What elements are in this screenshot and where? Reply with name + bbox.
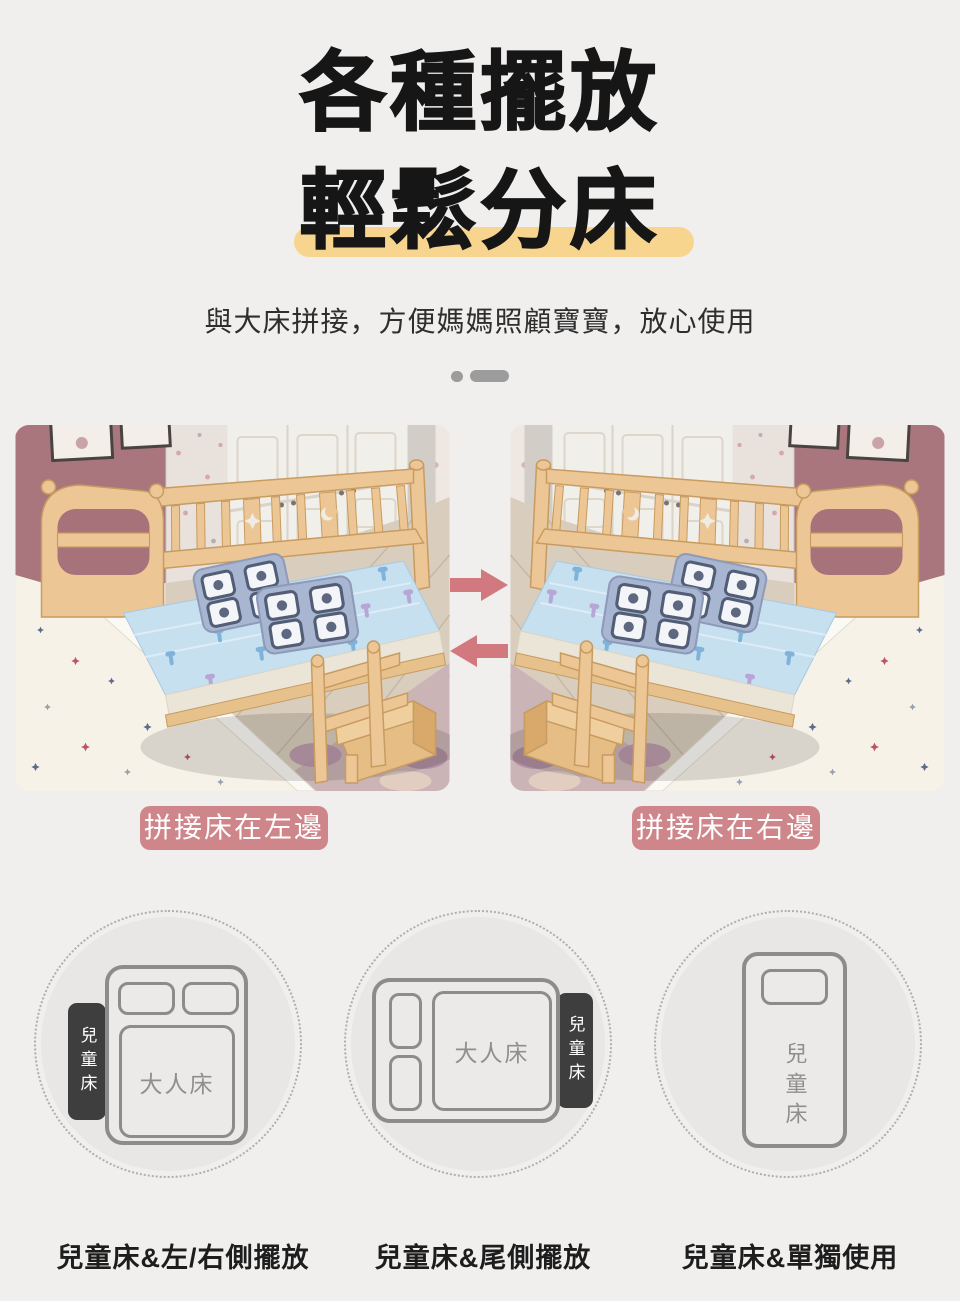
adult-bed-label: 大人床: [455, 1034, 530, 1068]
section-divider: [0, 370, 960, 382]
child-bed-label: 兒童床: [779, 1042, 811, 1132]
label-bed-on-right: 拼接床在右邊: [632, 806, 820, 850]
pillow-shape: [389, 993, 422, 1049]
title-line-2: 輕鬆分床: [300, 168, 660, 254]
caption-standalone: 兒童床&單獨使用: [682, 1236, 899, 1275]
swap-arrows: [450, 566, 508, 670]
title-line-1: 各種擺放: [0, 50, 960, 136]
layout-diagram-standalone: 兒童床: [654, 910, 922, 1178]
bedroom-photo-left-scene: [15, 425, 450, 791]
adult-bed-shape: 大人床: [105, 965, 248, 1145]
title-line-2-text: 輕鬆分床: [300, 163, 660, 259]
arrow-left-icon: [450, 632, 508, 670]
label-bed-on-left: 拼接床在左邊: [140, 806, 328, 850]
child-bed-tab-right: 兒童床: [557, 993, 593, 1108]
pillow-shape: [118, 982, 175, 1015]
child-bed-tab-left: 兒童床: [68, 1003, 106, 1120]
divider-bar: [470, 370, 509, 382]
adult-bed-shape: 大人床: [372, 978, 560, 1123]
adult-mattress-shape: 大人床: [432, 991, 552, 1111]
layout-diagram-side-placement: 兒童床 大人床: [34, 910, 302, 1178]
adult-bed-label: 大人床: [140, 1065, 215, 1099]
arrow-right-icon: [450, 566, 508, 604]
photo-bed-attached-left: [15, 425, 450, 791]
caption-side-placement: 兒童床&左/右側擺放: [57, 1236, 310, 1275]
child-bed-shape: 兒童床: [742, 952, 847, 1148]
photo-comparison: [15, 425, 945, 791]
caption-foot-placement: 兒童床&尾側擺放: [375, 1236, 592, 1275]
bedroom-photo-right-scene: [510, 425, 945, 791]
divider-dot: [451, 371, 463, 382]
layout-diagram-foot-placement: 兒童床 大人床: [344, 910, 612, 1178]
pillow-shape: [761, 969, 828, 1005]
page-title: 各種擺放 輕鬆分床: [0, 0, 960, 254]
photo-bed-attached-right: [510, 425, 945, 791]
adult-mattress-shape: 大人床: [119, 1025, 235, 1138]
pillow-shape: [182, 982, 239, 1015]
promo-page: 各種擺放 輕鬆分床 與大床拼接，方便媽媽照顧寶寶，放心使用: [0, 0, 960, 1301]
pillow-shape: [389, 1055, 422, 1111]
subtitle: 與大床拼接，方便媽媽照顧寶寶，放心使用: [0, 300, 960, 340]
